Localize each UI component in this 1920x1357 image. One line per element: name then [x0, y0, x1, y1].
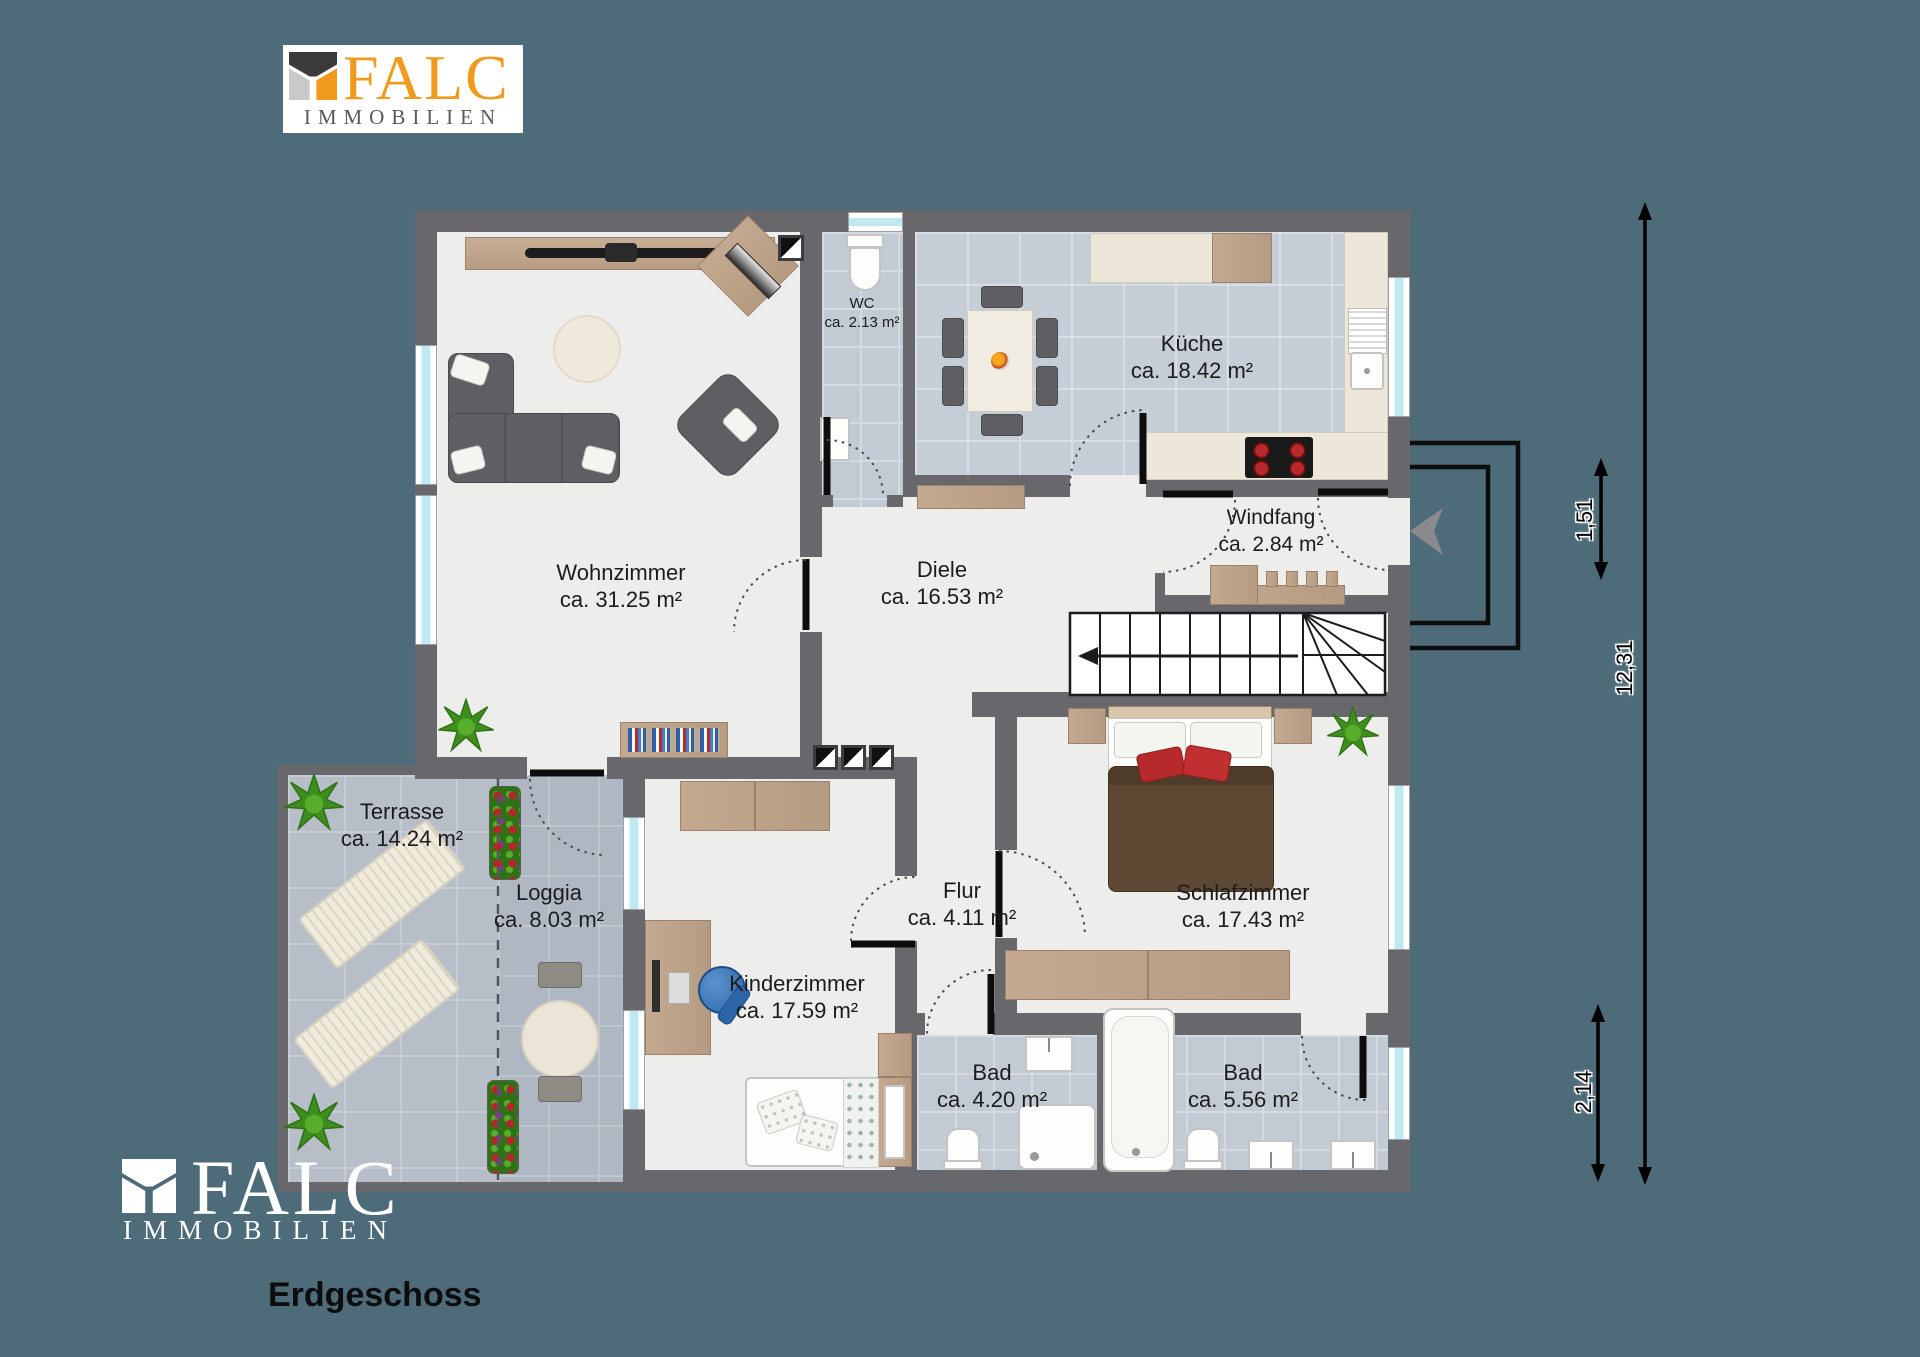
kinder-bed-blanket [843, 1078, 879, 1168]
chimney-symbol-2 [841, 745, 866, 770]
room-label-wc: WCca. 2.13 m² [824, 294, 899, 332]
falc-logo-white-subtitle: IMMOBILIEN [123, 1215, 393, 1246]
wall-top [415, 210, 1410, 232]
shower-head [1030, 1152, 1039, 1161]
falc-logo-mark-icon [289, 51, 337, 101]
wc-wall-bottom-a [822, 495, 833, 507]
room-name: Loggia [494, 879, 604, 906]
bad-gross-toilet-tank [1183, 1160, 1223, 1170]
kinderzimmer-window-1 [623, 817, 645, 910]
bookshelf-books [628, 728, 720, 752]
floor-title: Erdgeschoss [268, 1276, 482, 1315]
falc-logo-text: FALC [343, 51, 510, 105]
diele-sideboard [917, 485, 1025, 509]
room-area: ca. 4.11 m² [908, 904, 1016, 931]
bad-gross-sink-2-tap [1352, 1152, 1354, 1168]
shower [1018, 1104, 1096, 1170]
room-area: ca. 5.56 m² [1188, 1086, 1298, 1113]
wohnzimmer-window-2 [415, 495, 437, 645]
stove-burner-2 [1289, 442, 1306, 459]
wc-wall-bottom-b [887, 495, 903, 507]
room-name: Küche [1131, 330, 1253, 357]
bed-blanket [1108, 766, 1274, 892]
wohnzimmer-wall-right-a [800, 232, 822, 557]
round-rug [553, 315, 621, 383]
chimney-symbol-top [778, 235, 804, 261]
room-label-bad-gross: Badca. 5.56 m² [1188, 1059, 1298, 1113]
bad-klein-sink-tap [1048, 1038, 1050, 1052]
room-name: Wohnzimmer [556, 559, 685, 586]
entrance-doorway [1388, 498, 1410, 565]
windfang-wardrobe-block [1210, 565, 1258, 605]
room-area: ca. 4.20 m² [937, 1086, 1047, 1113]
room-name: Bad [1188, 1059, 1298, 1086]
windfang-hook-1 [1266, 571, 1278, 587]
room-label-kinderzimmer: Kinderzimmerca. 17.59 m² [729, 970, 865, 1024]
dim-label-entrance: 1,51 [1572, 499, 1598, 542]
kinderzimmer-wardrobe-divider [754, 782, 756, 830]
room-area: ca. 17.59 m² [729, 997, 865, 1024]
room-area: ca. 18.42 m² [1131, 357, 1253, 384]
loggia-table [521, 1000, 599, 1078]
bathtub-inner [1111, 1016, 1169, 1158]
room-label-schlafzimmer: Schlafzimmerca. 17.43 m² [1176, 879, 1309, 933]
room-name: Flur [908, 877, 1016, 904]
bad-gross-sink-1-tap [1270, 1152, 1272, 1168]
entrance-porch [1410, 443, 1518, 648]
schlafzimmer-wardrobe-divider [1147, 951, 1149, 999]
nightstand-left [1068, 708, 1106, 744]
room-area: ca. 31.25 m² [556, 586, 685, 613]
baeder-wall-top-c [1366, 1013, 1388, 1035]
wc-window [848, 212, 903, 232]
windfang-hook-3 [1306, 571, 1318, 587]
dining-chair-right-2 [1036, 366, 1058, 406]
dining-chair-top [981, 286, 1023, 308]
windfang-hook-2 [1286, 571, 1298, 587]
tv-center [605, 243, 637, 262]
falc-logo-subtitle: IMMOBILIEN [289, 105, 517, 130]
wohnzimmer-window-1 [415, 345, 437, 485]
desk-monitor [652, 960, 660, 1012]
wc-wall-right [903, 232, 915, 497]
flur-wall-left-b [895, 941, 917, 1035]
baeder-wall-top-a [917, 1013, 925, 1035]
room-label-bad-klein: Badca. 4.20 m² [937, 1059, 1047, 1113]
wall-bottom [623, 1170, 1410, 1192]
loggia-chair-bottom [538, 1076, 582, 1102]
bad-klein-toilet-tank [943, 1160, 983, 1170]
flur-wall-left-a [895, 779, 917, 876]
room-name: WC [824, 294, 899, 313]
room-area: ca. 8.03 m² [494, 906, 604, 933]
room-name: Schlafzimmer [1176, 879, 1309, 906]
room-label-loggia: Loggiaca. 8.03 m² [494, 879, 604, 933]
room-label-kueche: Kücheca. 18.42 m² [1131, 330, 1253, 384]
room-label-flur: Flurca. 4.11 m² [908, 877, 1016, 931]
wc-sink [820, 417, 850, 461]
schlafzimmer-window [1388, 785, 1410, 950]
room-name: Diele [881, 556, 1003, 583]
kinderzimmer-window-2 [623, 1010, 645, 1110]
stove-burner-3 [1253, 460, 1270, 477]
stove-burner-1 [1253, 442, 1270, 459]
floorplan-page: Wohnzimmerca. 31.25 m² WCca. 2.13 m² Küc… [0, 0, 1920, 1357]
dining-chair-right-1 [1036, 318, 1058, 358]
room-name: Terrasse [341, 798, 463, 825]
plant-terrasse-top-icon [283, 773, 345, 835]
room-area: ca. 17.43 m² [1176, 906, 1309, 933]
room-label-diele: Dieleca. 16.53 m² [881, 556, 1003, 610]
kitchen-island-wood [1212, 233, 1272, 283]
stove-burner-4 [1289, 460, 1306, 477]
room-area: ca. 16.53 m² [881, 583, 1003, 610]
dim-label-total: 12,31 [1612, 640, 1638, 695]
plant-schlafzimmer-icon [1326, 706, 1380, 760]
wohnzimmer-wall-right-b [800, 632, 822, 757]
room-label-windfang: Windfangca. 2.84 m² [1218, 504, 1323, 558]
desk-keyboard [668, 972, 690, 1004]
kueche-window [1388, 277, 1410, 417]
chimney-symbol-1 [813, 745, 838, 770]
wc-toilet-bowl [849, 247, 881, 291]
room-area: ca. 14.24 m² [341, 825, 463, 852]
windfang-hook-4 [1326, 571, 1338, 587]
bad-gross-window [1388, 1047, 1410, 1140]
dim-label-lower: 2,14 [1571, 1071, 1597, 1114]
fruit-plate [991, 352, 1009, 370]
room-label-terrasse: Terrasseca. 14.24 m² [341, 798, 463, 852]
wc-toilet-tank [846, 234, 884, 248]
loggia-chair-top [538, 962, 582, 988]
bathtub-tap [1132, 1148, 1140, 1156]
nightstand-right [1274, 708, 1312, 744]
kinder-cabinet [878, 1033, 912, 1077]
falc-logo-card: FALC IMMOBILIEN [283, 45, 523, 133]
kitchen-drainer [1348, 308, 1387, 354]
room-label-wohnzimmer: Wohnzimmerca. 31.25 m² [556, 559, 685, 613]
dining-chair-bottom [981, 414, 1023, 436]
chimney-symbol-3 [869, 745, 894, 770]
room-name: Windfang [1218, 504, 1323, 531]
kitchen-sink-drain [1364, 368, 1370, 374]
bad-klein-toilet-bowl [946, 1128, 980, 1162]
room-area: ca. 2.84 m² [1218, 531, 1323, 558]
bad-gross-toilet-bowl [1186, 1128, 1220, 1162]
dining-chair-left-1 [942, 318, 964, 358]
windfang-wall-left [1155, 573, 1165, 613]
kinder-bed-foot-inner [884, 1085, 905, 1159]
wohnzimmer-wall-bottom-a [437, 757, 527, 779]
entrance-arrow-icon [1410, 508, 1443, 555]
flowerbox-bottom [487, 1080, 519, 1174]
room-name: Kinderzimmer [729, 970, 865, 997]
room-area: ca. 2.13 m² [824, 313, 899, 332]
plant-wohnzimmer-icon [437, 698, 495, 756]
room-name: Bad [937, 1059, 1047, 1086]
dining-chair-left-2 [942, 366, 964, 406]
falc-logo-white-mark-icon [121, 1159, 177, 1213]
flowerbox-top [489, 786, 521, 880]
schlafzimmer-wall-left-a [995, 717, 1017, 850]
falc-logo-white: FALC IMMOBILIEN [95, 1157, 425, 1277]
